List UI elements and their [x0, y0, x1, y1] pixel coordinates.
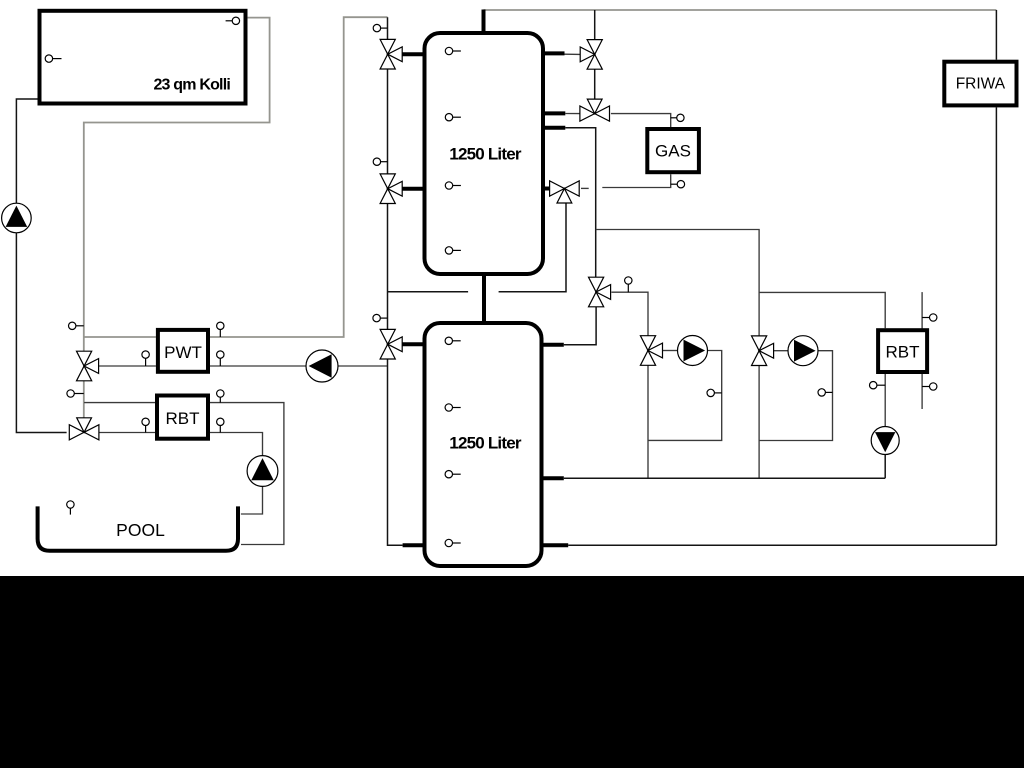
svg-text:23 qm Kolli: 23 qm Kolli [153, 77, 230, 94]
svg-text:RBT: RBT [886, 343, 920, 362]
svg-text:1250 Liter: 1250 Liter [449, 433, 522, 452]
svg-text:PWT: PWT [164, 343, 202, 362]
svg-text:POOL: POOL [116, 520, 165, 540]
svg-text:GAS: GAS [655, 142, 691, 161]
svg-text:FRIWA: FRIWA [956, 76, 1006, 93]
svg-text:1250 Liter: 1250 Liter [449, 144, 522, 163]
svg-text:RBT: RBT [166, 409, 200, 428]
